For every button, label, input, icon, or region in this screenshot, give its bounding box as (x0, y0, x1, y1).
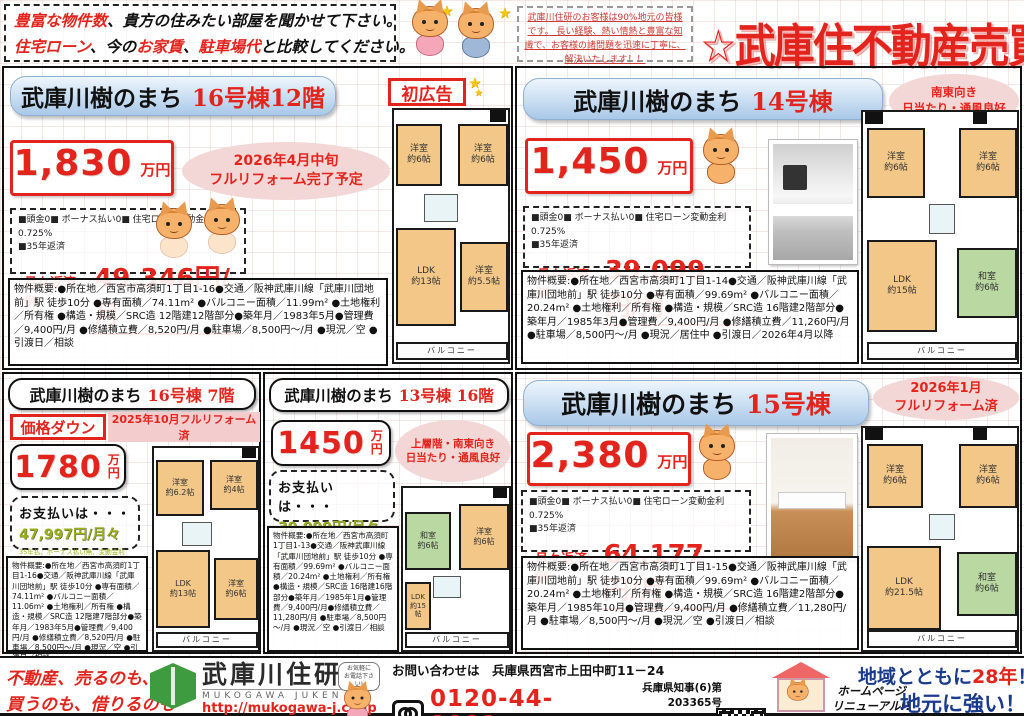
payment-value: 47,997円/月々 (19, 524, 131, 544)
room-label: 和室 約6帖 (957, 552, 1017, 616)
meter-box (865, 428, 883, 440)
bathroom-area (433, 576, 461, 598)
phone-number: 0120-44-9001 (430, 686, 596, 716)
room-label: 洋室 約5.5帖 (460, 242, 508, 312)
intro-text: 武庫川住研のお客様は90%地元の皆様です。 長い経験、熱い情熱と豊富な知識で、お… (524, 13, 685, 65)
property-overview: 物件概要:●所在地／西宮市高須町1丁目1-15●交通／阪神武庫川線「武庫川団地前… (521, 556, 859, 650)
floorplan: 洋室 約6帖 洋室 約6帖 LDK 約13帖 洋室 約5.5帖 バルコニー (392, 108, 510, 364)
listing-header: 武庫川樹のまち 14号棟 (523, 78, 883, 120)
tagline-seg: 駐車場代 (198, 38, 260, 56)
price-value: 1,830 (14, 143, 133, 184)
shaft-block (973, 428, 987, 440)
price-box: 1450 万円 (271, 420, 391, 466)
price-down-badge: 価格ダウン (10, 414, 106, 440)
listing-unit: 16号棟 7階 (148, 382, 235, 406)
sparkle-icon: ★ (474, 88, 483, 99)
listing-unit: 13号棟 16階 (399, 384, 494, 406)
property-overview: 物件概要:●所在地／西宮市高須町1丁目1-14●交通／阪神武庫川線「武庫川団地前… (521, 270, 859, 364)
region-text: 地域とともに (858, 666, 972, 688)
region-years: 28年 (972, 666, 1017, 688)
room-label: LDK 約13帖 (396, 228, 456, 326)
property-overview: 物件概要:●所在地／西宮市高須町1丁目1-16●交通／阪神武庫川線「武庫川団地前… (8, 278, 388, 366)
room-label: 洋室 約6帖 (959, 128, 1017, 198)
room-label: 洋室 約6帖 (867, 444, 923, 508)
cat-mascot-icon (344, 686, 371, 716)
listing-name: 武庫川樹のまち (21, 79, 182, 113)
reform-bubble: 2026年4月中旬 フルリフォーム完了予定 (182, 142, 390, 200)
room-label: 洋室 約6帖 (214, 558, 258, 620)
balcony-label: バルコニー (867, 342, 1017, 360)
cat-mascot-icon (699, 430, 735, 480)
price-unit: 万円 (657, 451, 687, 472)
payment-heading: お支払いは・・・ (278, 477, 386, 515)
room-label: 洋室 約6帖 (867, 128, 925, 198)
loan-terms: ■頭金0■ ボーナス払い0■ 住宅ローン変動金利0.725% (531, 212, 743, 239)
meter-box (242, 448, 256, 458)
tagline-box: 豊富な物件数、貴方の住みたい部屋を聞かせて下さい。 住宅ローン、今のお家賃、駐車… (4, 4, 396, 62)
listing-panel-13-16: 武庫川樹のまち 13号棟 16階 1450 万円 上層階・南東向き 日当たり・通… (263, 372, 513, 654)
house-cat-icon (772, 662, 830, 714)
tagline-line1: 豊富な物件数、貴方の住みたい部屋を聞かせて下さい。 (14, 8, 386, 34)
listing-panel-16-12: 武庫川樹のまち 16号棟12階 初広告 ★ ★ 1,830 万円 2026年4月… (2, 66, 513, 370)
floorplan: 洋室 約6帖 洋室 約6帖 LDK 約15帖 和室 約6帖 バルコニー (861, 110, 1019, 364)
loan-terms: ■35年返済 (531, 239, 743, 253)
balcony-label: バルコニー (396, 342, 508, 360)
shaft-block (973, 112, 987, 124)
contact-block: お問い合わせは 兵庫県西宮市上田中町11－24 0120-44-9001 兵庫県… (392, 660, 722, 716)
loan-terms: ■35年返済 (18, 241, 238, 255)
first-ad-badge: 初広告 (388, 78, 466, 106)
interior-photo (767, 434, 857, 560)
room-label: LDK 約21.5帖 (867, 546, 941, 630)
reform-bubble: 2026年1月 フルリフォーム済 (873, 376, 1019, 420)
bathroom-area (929, 204, 955, 234)
kitchen-photo (769, 140, 857, 264)
price-unit: 万円 (140, 159, 170, 180)
fax-number: FAX0798－44－6002 (602, 710, 722, 716)
tagline-seg: 、貴方の住みたい部屋を聞かせて下さい。 (107, 12, 402, 30)
payment-box: お支払いは・・・ 47,997円/月々 35年払、ボーナス払い無、変動金利0.7… (10, 496, 140, 550)
listing-unit: 15号棟 (746, 385, 831, 421)
room-label: 洋室 約6帖 (459, 504, 509, 570)
listing-header: 武庫川樹のまち 16号棟 7階 (8, 378, 256, 410)
listing-name: 武庫川樹のまち (284, 384, 393, 406)
room-label: 和室 約6帖 (957, 248, 1017, 318)
room-label: LDK 約15帖 (867, 240, 937, 332)
payment-heading: お支払いは・・・ (19, 503, 131, 522)
bathroom-area (424, 194, 458, 222)
price-value: 1,450 (531, 141, 650, 182)
price-value: 1450 (277, 426, 365, 461)
listing-name: 武庫川樹のまち (30, 382, 142, 406)
flyer-page: 豊富な物件数、貴方の住みたい部屋を聞かせて下さい。 住宅ローン、今のお家賃、駐車… (0, 0, 1024, 716)
loan-terms: ■35年返済 (529, 523, 743, 537)
price-box: 1,450 万円 (525, 138, 693, 194)
floorplan: 洋室 約6.2帖 洋室 約4帖 LDK 約13帖 洋室 約6帖 バルコニー (152, 446, 260, 652)
listing-unit: 14号棟 (751, 82, 832, 117)
room-label: LDK 約15帖 (405, 582, 431, 630)
price-value: 1780 (14, 450, 102, 485)
license-number: 兵庫県知事(6)第203365号 (602, 680, 722, 710)
floorplan: 和室 約6帖 洋室 約6帖 LDK 約15帖 バルコニー (401, 486, 511, 652)
price-unit: 万円 (657, 157, 687, 178)
balcony-label: バルコニー (867, 630, 1017, 648)
room-label: 洋室 約6.2帖 (156, 460, 204, 516)
bathroom-area (182, 522, 212, 546)
balcony-label: バルコニー (156, 632, 258, 648)
cat-mascot-icon (703, 134, 739, 184)
price-unit: 万円 (108, 454, 122, 480)
contact-address: お問い合わせは 兵庫県西宮市上田中町11－24 (392, 660, 722, 679)
tagline-seg: 豊富な物件数 (14, 12, 107, 30)
price-box: 1,830 万円 (10, 140, 174, 196)
room-label: 洋室 約4帖 (210, 460, 258, 510)
listing-header: 武庫川樹のまち 15号棟 (523, 380, 869, 426)
room-label: 洋室 約6帖 (458, 124, 508, 186)
floorplan: 洋室 約6帖 洋室 約6帖 LDK 約21.5帖 和室 約6帖 バルコニー (861, 426, 1019, 652)
listing-name: 武庫川樹のまち (573, 82, 741, 117)
cat-mascot-icon (458, 8, 494, 58)
price-box: 2,380 万円 (527, 432, 691, 486)
payment-box: お支払いは・・・ 39,099円/月々 35年払、ボーナス払い無、変動金利0.7… (269, 470, 395, 522)
price-value: 2,380 (531, 435, 650, 476)
property-overview: 物件概要:●所在地／西宮市高須町1丁目1-13●交通／阪神武庫川線「武庫川団地前… (267, 526, 399, 652)
qr-code (716, 708, 766, 716)
bathroom-area (929, 514, 955, 540)
meter-box (493, 488, 507, 498)
meter-box (865, 112, 883, 124)
tagline-seg: 住宅ローン (14, 38, 90, 56)
footer-bar: 不動産、売るのも、 買うのも、借りるのも 武庫川住研 MUKOGAWA JUKE… (0, 656, 1024, 716)
property-overview: 物件概要:●所在地／西宮市高須町1丁目1-16●交通／阪神武庫川線「武庫川団地前… (6, 556, 148, 652)
tagline-seg: と比較してください。 (260, 38, 414, 56)
cat-mascot-icon (412, 6, 448, 56)
listing-header: 武庫川樹のまち 13号棟 16階 (269, 378, 509, 412)
tagline-seg: 、 (183, 38, 199, 56)
intro-box: 武庫川住研のお客様は90%地元の皆様です。 長い経験、熱い情熱と豊富な知識で、お… (517, 6, 693, 62)
tagline-seg: お家賃 (136, 38, 183, 56)
room-label: 洋室 約6帖 (396, 124, 442, 186)
listing-unit: 16号棟12階 (192, 79, 325, 113)
direction-bubble: 上層階・南東向き 日当たり・通風良好 (395, 420, 511, 482)
listing-panel-15: 武庫川樹のまち 15号棟 2026年1月 フルリフォーム済 2,380 万円 ■… (515, 372, 1022, 654)
price-unit: 万円 (371, 430, 385, 456)
room-label: 洋室 約6帖 (959, 444, 1017, 508)
loan-terms: ■頭金0■ ボーナス払い0■ 住宅ローン変動金利0.725% (529, 496, 743, 523)
sparkle-icon: ★ (498, 4, 511, 22)
loan-terms-box: ■頭金0■ ボーナス払い0■ 住宅ローン変動金利0.725% ■35年返済 月々… (523, 206, 751, 268)
region-slogan: 地域とともに28年！ (858, 662, 1024, 689)
listing-panel-14: 武庫川樹のまち 14号棟 南東向き 日当たり・通風良好 1,450 万円 ■頭金… (515, 66, 1022, 370)
tagline-seg: 、今の (90, 38, 137, 56)
room-label: 和室 約6帖 (405, 512, 451, 570)
listing-header: 武庫川樹のまち 16号棟12階 (10, 76, 336, 116)
local-slogan: 地元に強い！ (900, 688, 1024, 716)
room-label: LDK 約13帖 (156, 550, 210, 628)
listing-panel-16-7: 武庫川樹のまち 16号棟 7階 価格ダウン 2025年10月フルリフォーム済 1… (2, 372, 261, 654)
price-box: 1780 万円 (10, 444, 126, 490)
balcony-label: バルコニー (405, 632, 509, 648)
tagline-line2: 住宅ローン、今のお家賃、駐車場代と比較してください。 (14, 34, 386, 60)
loan-terms-box: ■頭金0■ ボーナス払い0■ 住宅ローン変動金利0.725% ■35年返済 月々… (521, 490, 751, 552)
listing-name: 武庫川樹のまち (561, 385, 736, 421)
reform-band: 2025年10月フルリフォーム済 (108, 412, 260, 442)
region-text: ！ (1017, 666, 1024, 688)
freedial-icon (392, 700, 424, 716)
meter-box (490, 110, 506, 122)
